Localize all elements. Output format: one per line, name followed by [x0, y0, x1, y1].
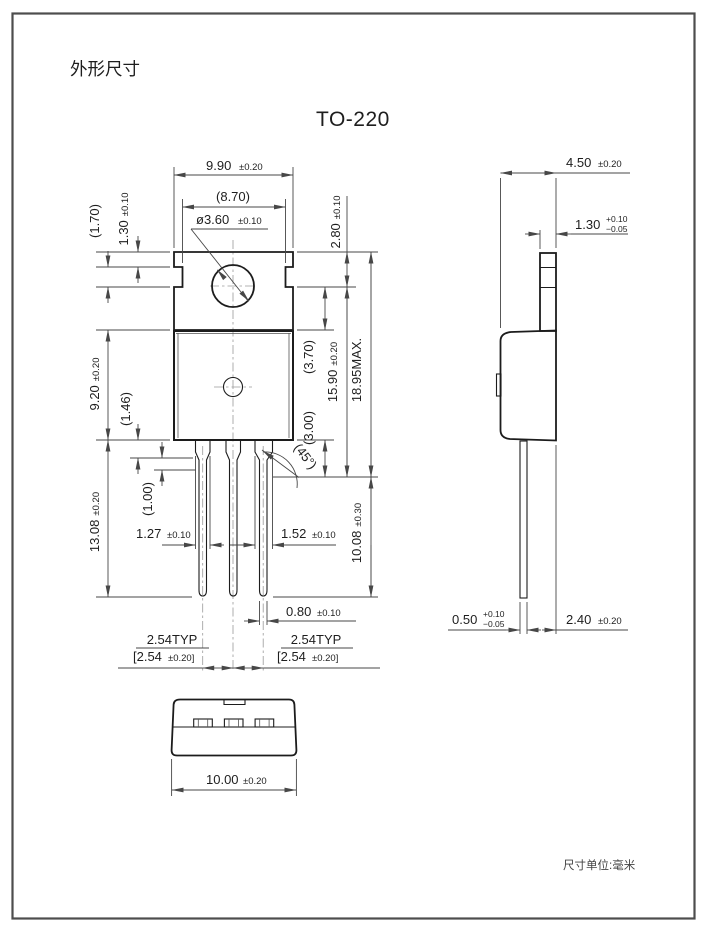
bottom-lead-3 — [255, 719, 274, 727]
bottom-lead-sections — [194, 719, 274, 727]
side-dimensions: 4.50 ±0.20 1.30 +0.10 −0.05 0.50 +0.10 −… — [448, 155, 630, 634]
dim-tab-inner-width — [183, 199, 286, 263]
dim-body-height-text: 9.20±0.20 — [87, 357, 102, 410]
dim-shoulder-len — [130, 424, 193, 474]
dim-hole-to-shoulder-text: 15.90±0.20 — [325, 342, 340, 402]
dim-side-lead-thickness-tol-plus: +0.10 — [483, 609, 505, 619]
side-lead — [520, 441, 527, 598]
front-dimensions: 9.90 ±0.20 (8.70) ø3.60 ±0.10 2.80±0.10 — [87, 158, 380, 668]
dim-body-height — [96, 330, 170, 440]
dim-lead-len — [96, 440, 192, 597]
dim-body-width-tol: ±0.20 — [239, 162, 263, 173]
dim-hole-dia-tol: ±0.10 — [238, 216, 262, 227]
dim-tab-top-to-notch — [96, 236, 170, 283]
dim-pitch-left-bracket: [2.54 — [133, 649, 162, 664]
dim-lead-len-text: 13.08±0.20 — [87, 492, 102, 552]
dim-pitch-left-typ: 2.54TYP — [147, 632, 198, 647]
dim-pitch-right-typ: 2.54TYP — [291, 632, 342, 647]
dim-taper-len-value: (1.00) — [140, 482, 155, 516]
dim-lead-width-1-value: 1.27 — [136, 526, 161, 541]
bottom-lead-2 — [224, 719, 243, 727]
outline-dimensions-drawing: 外形尺寸 TO-220 尺寸单位:毫米 9.90 ±0.2 — [0, 0, 708, 934]
dim-body-width — [174, 167, 293, 248]
dim-bottom-width-value: 10.00 — [206, 772, 239, 787]
body-inner-lines — [176, 333, 291, 438]
bottom-lead-1 — [194, 719, 213, 727]
front-view — [174, 240, 293, 672]
tab-outline — [174, 252, 293, 330]
dim-pitch-right-bracket: [2.54 — [277, 649, 306, 664]
dim-depth — [501, 173, 631, 328]
side-tab-lines — [540, 268, 556, 288]
dim-pitch-right — [233, 648, 380, 668]
dim-lead-below-text: 10.08±0.30 — [349, 503, 364, 563]
dim-lead-offset-tol: ±0.20 — [598, 616, 622, 627]
dim-bottom-width-tol: ±0.20 — [243, 776, 267, 787]
page-border — [13, 14, 695, 919]
datasheet-page: 外形尺寸 TO-220 尺寸单位:毫米 9.90 ±0.2 — [0, 0, 708, 934]
package-name: TO-220 — [316, 108, 390, 131]
dim-depth-value: 4.50 — [566, 155, 591, 170]
dim-notch-height — [96, 251, 170, 303]
side-tab-outline — [540, 253, 556, 331]
dim-pitch-right-bracket-tol: ±0.20] — [312, 653, 338, 664]
dim-depth-tol: ±0.20 — [598, 159, 622, 170]
dim-notch-height-value: (1.70) — [87, 204, 102, 238]
dim-tab-height-value: (3.70) — [301, 340, 316, 374]
dim-hole-dia-value: ø3.60 — [196, 212, 229, 227]
front-centerlines — [203, 240, 264, 672]
side-view — [497, 253, 557, 598]
side-body-outline — [501, 331, 557, 441]
body-outline — [174, 331, 293, 440]
dim-shoulder-len-value: (1.46) — [118, 392, 133, 426]
dim-lead-offset-value: 2.40 — [566, 612, 591, 627]
dim-taper-len — [154, 442, 196, 486]
dim-side-lead-thickness-value: 0.50 — [452, 612, 477, 627]
units-note: 尺寸单位:毫米 — [563, 858, 636, 872]
dim-tab-top-to-notch-text: 1.30±0.10 — [116, 192, 131, 245]
dim-lead-offset — [542, 445, 628, 634]
dim-lead-thickness-tol: ±0.10 — [317, 608, 341, 619]
dim-lead-width-2-value: 1.52 — [281, 526, 306, 541]
dim-body-width-value: 9.90 — [206, 158, 231, 173]
dim-tab-thickness-tol-minus: −0.05 — [606, 224, 628, 234]
dim-tab-inner-width-value: (8.70) — [216, 189, 250, 204]
dim-tab-top-to-hole-text: 2.80±0.10 — [328, 195, 343, 248]
dim-tab-thickness-tol-plus: +0.10 — [606, 214, 628, 224]
dim-total-height-value: 18.95MAX. — [349, 338, 364, 402]
dim-side-lead-thickness-tol-minus: −0.05 — [483, 619, 505, 629]
bottom-view: 10.00 ±0.20 — [172, 700, 297, 797]
dim-tab-height — [297, 287, 334, 330]
dim-lead-width-1-tol: ±0.10 — [167, 530, 191, 541]
dim-tab-thickness-value: 1.30 — [575, 217, 600, 232]
dim-pitch-left-bracket-tol: ±0.20] — [168, 653, 194, 664]
lead-3 — [255, 440, 273, 596]
dim-lead-width-2-tol: ±0.10 — [312, 530, 336, 541]
page-title: 外形尺寸 — [70, 59, 140, 79]
dim-lead-thickness-value: 0.80 — [286, 604, 311, 619]
